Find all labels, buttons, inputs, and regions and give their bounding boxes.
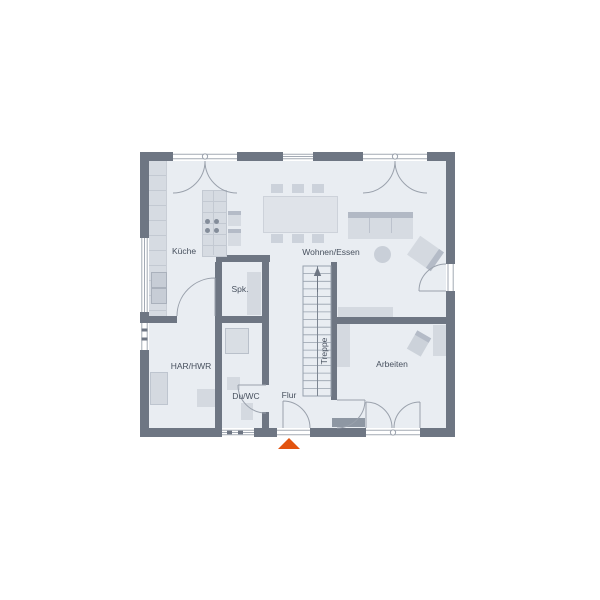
shelf-arbeiten — [337, 324, 350, 367]
room-label-kueche: Küche — [172, 246, 196, 256]
room-label-spk: Spk. — [231, 284, 248, 294]
french-door-living — [363, 152, 427, 161]
stove-burner — [214, 228, 219, 233]
wall-duwc-east-lower — [262, 412, 269, 428]
sideboard-entrance — [332, 418, 365, 427]
window-top-center — [283, 152, 313, 161]
wall-har-north — [149, 316, 177, 323]
dining-chair — [271, 184, 283, 193]
dining-chair — [292, 184, 304, 193]
washbasin — [227, 377, 240, 390]
dining-chair — [271, 234, 283, 243]
terrace-door-right — [446, 264, 455, 291]
entrance-door — [277, 428, 310, 437]
dining-table — [263, 196, 338, 233]
french-door-arbeiten — [366, 428, 420, 437]
wall-duwc-east-upper — [262, 262, 269, 385]
toilet — [241, 403, 253, 420]
window-har-left — [140, 323, 149, 350]
french-door-kitchen — [173, 152, 237, 161]
window-bottom-har — [222, 428, 254, 437]
floor-plan: Küche Wohnen/Essen Spk. HAR/HWR Du/WC Fl… — [0, 0, 600, 600]
room-label-har-hwr: HAR/HWR — [171, 361, 212, 371]
room-label-wohnen-essen: Wohnen/Essen — [302, 247, 360, 257]
wall-har-east — [215, 262, 222, 428]
stove-burner — [205, 228, 210, 233]
room-label-treppe: Treppe — [319, 338, 329, 365]
washing-machine — [150, 372, 168, 405]
dining-chair — [312, 234, 324, 243]
kitchen-stool — [228, 229, 241, 246]
outer-wall-right — [446, 152, 455, 437]
room-label-du-wc: Du/WC — [232, 391, 259, 401]
stove-burner — [205, 219, 210, 224]
pantry-shelf — [247, 272, 261, 315]
kitchen-sink-appliance — [151, 288, 167, 304]
room-label-arbeiten: Arbeiten — [376, 359, 408, 369]
dining-chair — [312, 184, 324, 193]
coffee-table — [374, 246, 391, 263]
wall-arbeiten-north — [337, 317, 446, 324]
sofa-seat-divider — [391, 218, 392, 233]
sofa — [348, 212, 413, 239]
desk — [433, 325, 446, 356]
sofa-seat-divider — [369, 218, 370, 233]
sideboard-living — [338, 307, 393, 317]
shower — [225, 328, 249, 354]
kitchen-stool — [228, 211, 241, 226]
stove-burner — [214, 219, 219, 224]
window-kitchen-left — [140, 238, 149, 312]
har-appliance — [197, 389, 215, 407]
entrance-marker — [278, 438, 300, 449]
room-label-flur: Flur — [282, 390, 297, 400]
kitchen-oven — [151, 272, 167, 288]
dining-chair — [292, 234, 304, 243]
